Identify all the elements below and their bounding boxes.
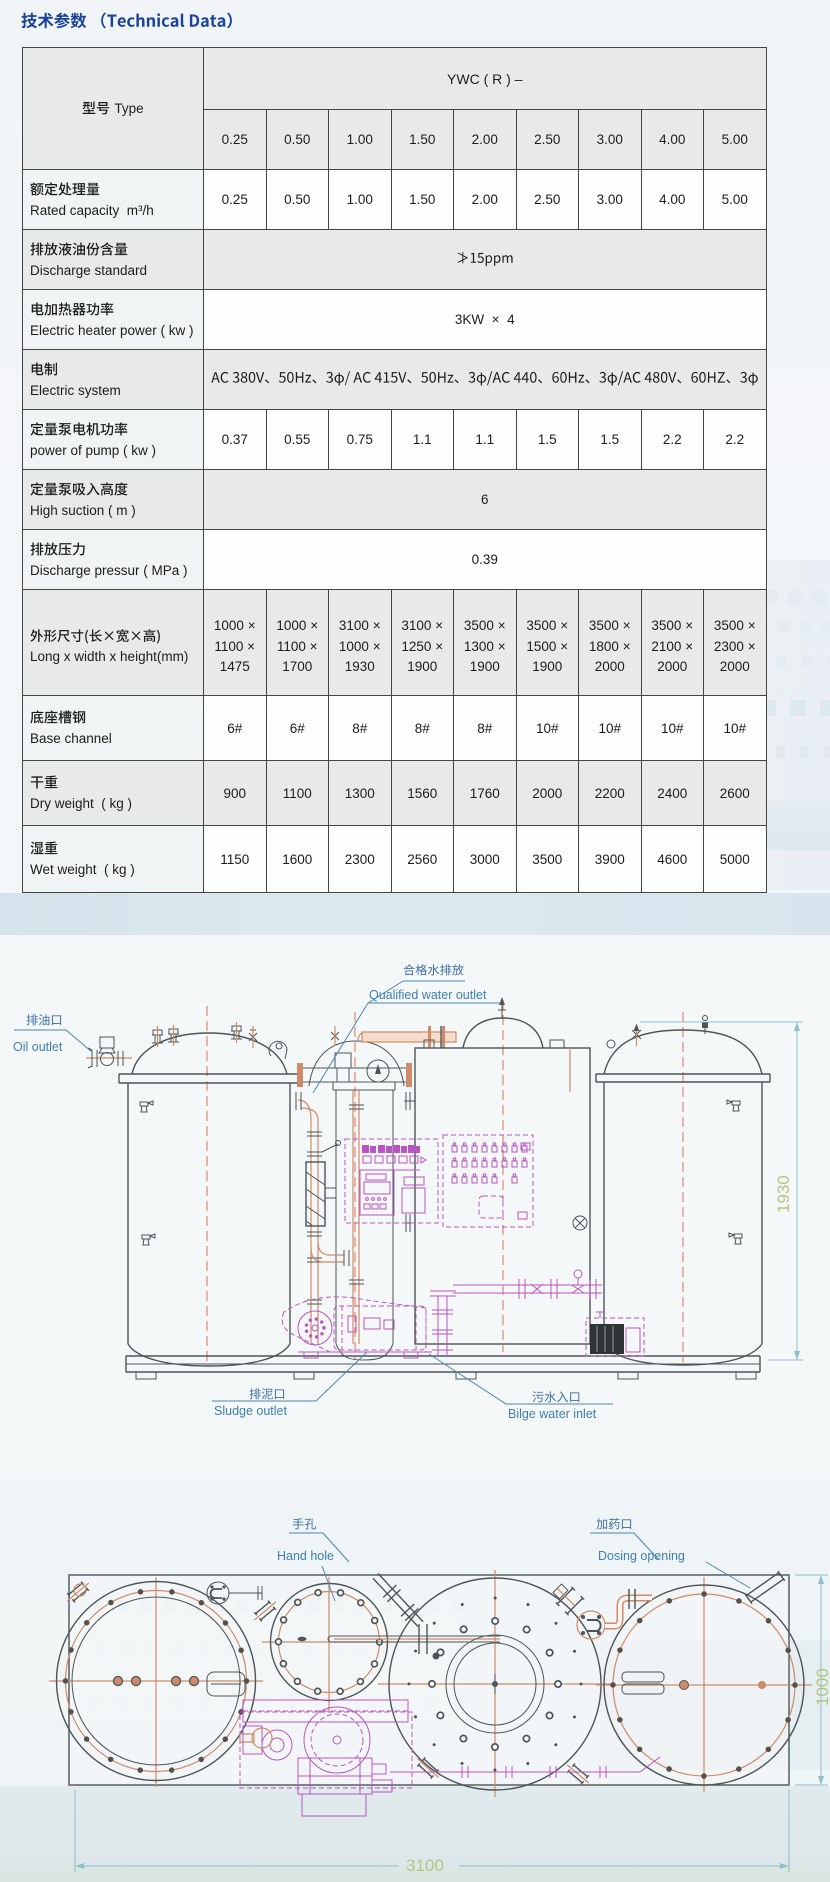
svg-text:Hand hole: Hand hole [277, 1549, 334, 1563]
svg-text:3100: 3100 [406, 1856, 444, 1875]
svg-text:Dosing opening: Dosing opening [598, 1549, 685, 1563]
svg-text:Qualified water outlet: Qualified water outlet [369, 988, 487, 1002]
svg-text:Oil outlet: Oil outlet [13, 1040, 63, 1054]
svg-text:1000: 1000 [813, 1668, 830, 1706]
svg-text:1930: 1930 [774, 1175, 793, 1213]
